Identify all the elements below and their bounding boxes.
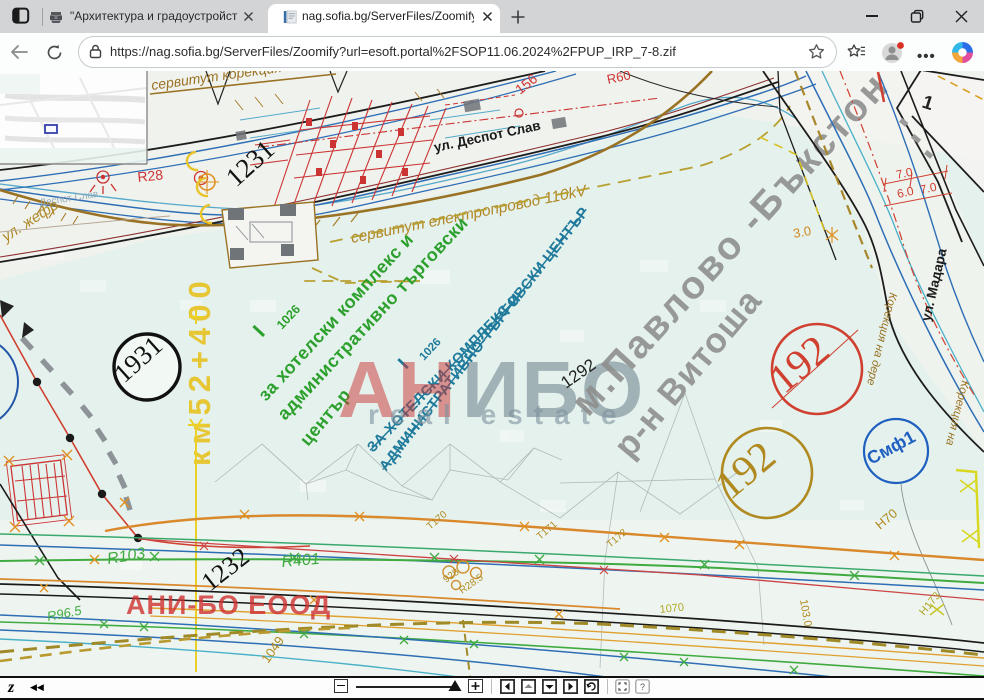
svg-text:3.0: 3.0 (792, 223, 812, 241)
svg-text:R401: R401 (281, 551, 321, 571)
svg-text:км52+400: км52+400 (182, 275, 217, 466)
svg-text:1070: 1070 (659, 601, 685, 615)
svg-text:АНИ-БО ЕООД: АНИ-БО ЕООД (126, 590, 331, 620)
svg-text:?: ? (640, 682, 645, 692)
svg-text:R28: R28 (137, 166, 164, 185)
